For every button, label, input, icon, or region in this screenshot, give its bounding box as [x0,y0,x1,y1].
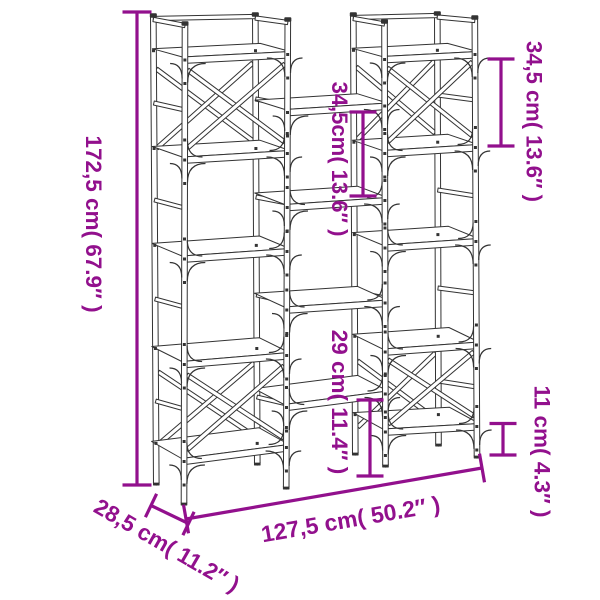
svg-text:29 cm( 11.4″ ): 29 cm( 11.4″ ) [327,330,352,475]
svg-text:34,5 cm( 13.6″ ): 34,5 cm( 13.6″ ) [522,41,547,202]
svg-text:172,5 cm( 67.9″ ): 172,5 cm( 67.9″ ) [81,135,106,312]
svg-text:34,5cm( 13.6″ ): 34,5cm( 13.6″ ) [327,82,352,237]
svg-text:11 cm( 4.3″ ): 11 cm( 4.3″ ) [530,385,555,517]
